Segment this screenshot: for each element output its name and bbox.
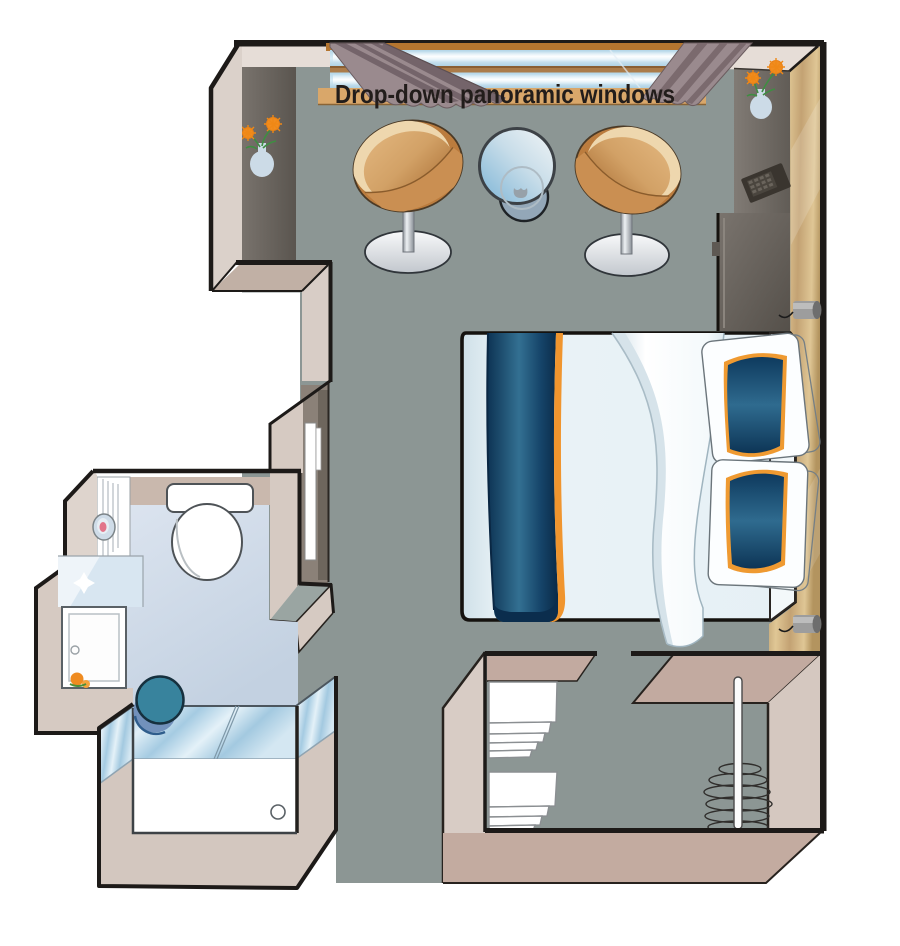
svg-text:Drop-down panoramic windows: Drop-down panoramic windows [335,79,675,109]
